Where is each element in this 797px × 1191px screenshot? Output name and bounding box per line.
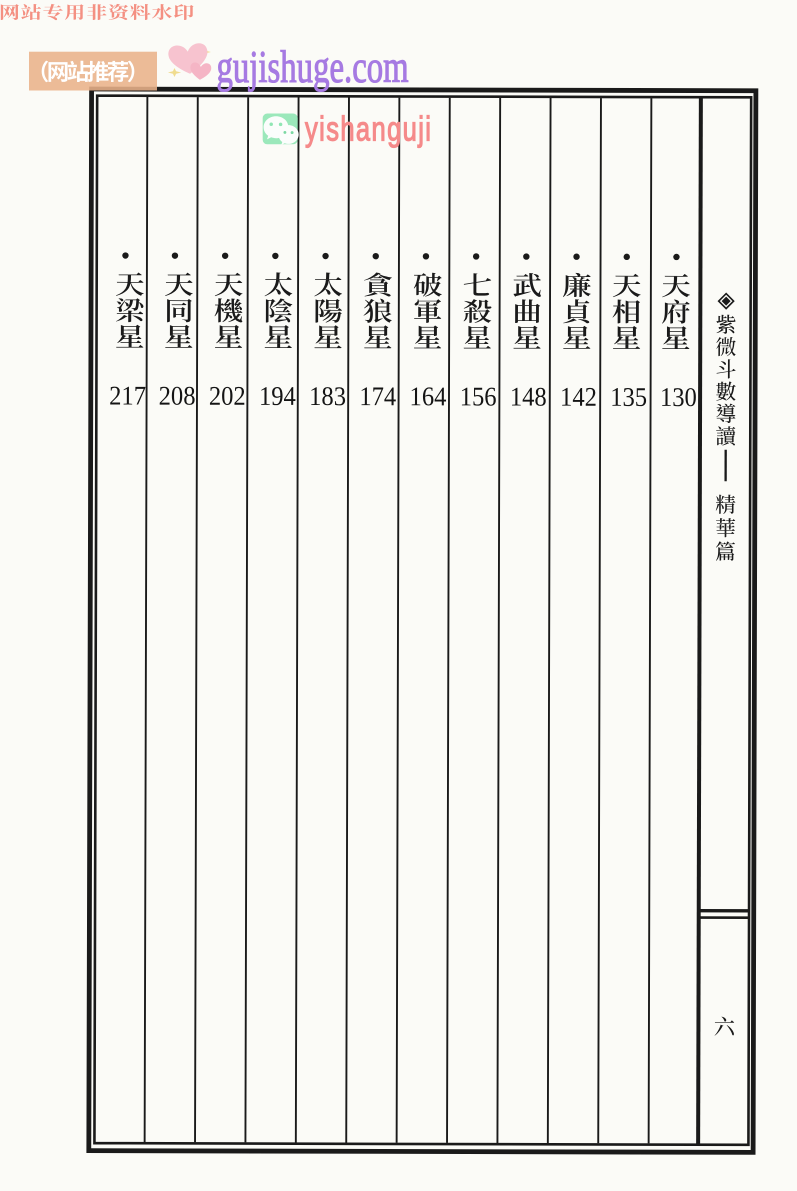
svg-text:183: 183 — [309, 381, 346, 411]
svg-text:135: 135 — [610, 382, 647, 412]
svg-text:217: 217 — [109, 380, 146, 410]
svg-text:130: 130 — [660, 382, 697, 412]
svg-text:164: 164 — [410, 381, 447, 411]
svg-text:yishanguji: yishanguji — [305, 111, 432, 149]
svg-text:gujishuge.com: gujishuge.com — [217, 42, 409, 92]
svg-text:208: 208 — [159, 381, 196, 411]
svg-text:194: 194 — [259, 381, 296, 411]
svg-text:148: 148 — [510, 381, 547, 411]
svg-text:174: 174 — [359, 381, 396, 411]
svg-text:202: 202 — [209, 381, 246, 411]
svg-text:156: 156 — [460, 381, 497, 411]
svg-text:142: 142 — [560, 382, 597, 412]
